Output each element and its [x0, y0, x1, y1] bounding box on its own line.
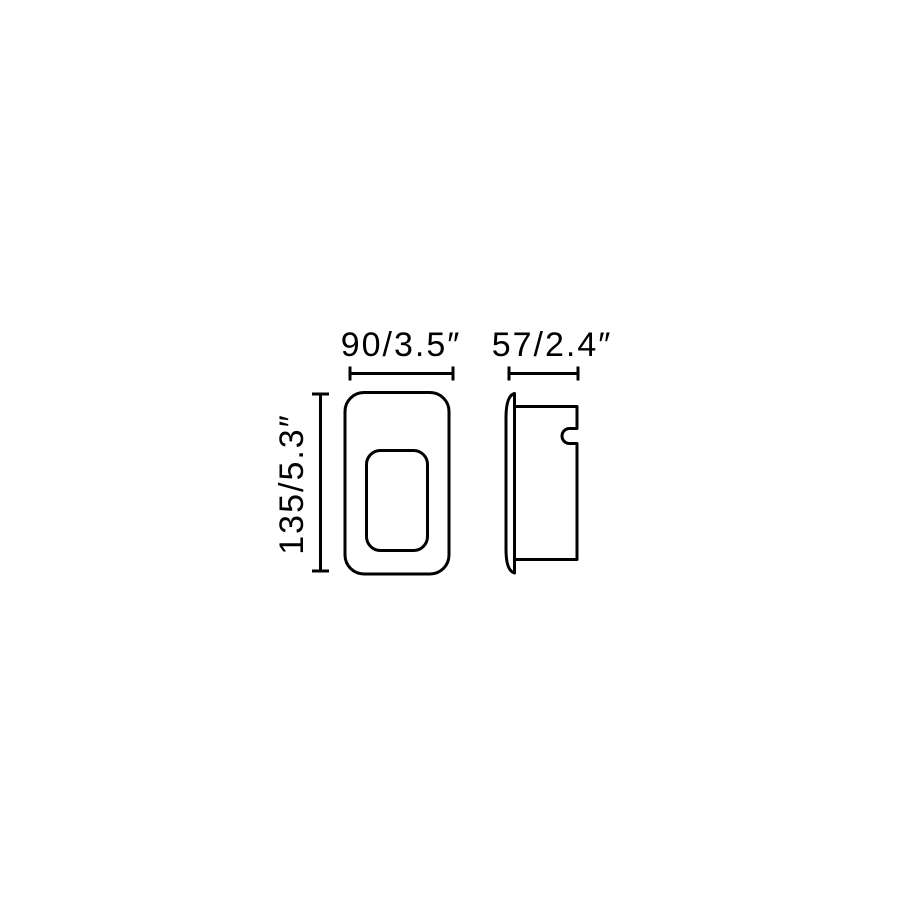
side-view	[506, 394, 577, 574]
technical-drawing: 90/3.5″ 57/2.4″ 135/5.3″	[0, 0, 900, 900]
depth-dimension: 57/2.4″	[492, 326, 613, 381]
depth-dimension-line	[509, 367, 578, 381]
height-dimension-label: 135/5.3″	[273, 413, 311, 554]
dimension-drawing-canvas: 90/3.5″ 57/2.4″ 135/5.3″	[0, 0, 900, 900]
width-dimension: 90/3.5″	[341, 326, 462, 381]
side-housing-outline	[515, 407, 578, 560]
depth-dimension-label: 57/2.4″	[492, 326, 613, 364]
front-view	[345, 393, 449, 575]
height-dimension-line	[312, 394, 329, 571]
width-dimension-label: 90/3.5″	[341, 326, 462, 364]
width-dimension-line	[350, 367, 453, 381]
height-dimension: 135/5.3″	[273, 394, 329, 571]
side-trim-flange-outline	[506, 394, 515, 574]
front-light-window-outline	[367, 451, 428, 551]
